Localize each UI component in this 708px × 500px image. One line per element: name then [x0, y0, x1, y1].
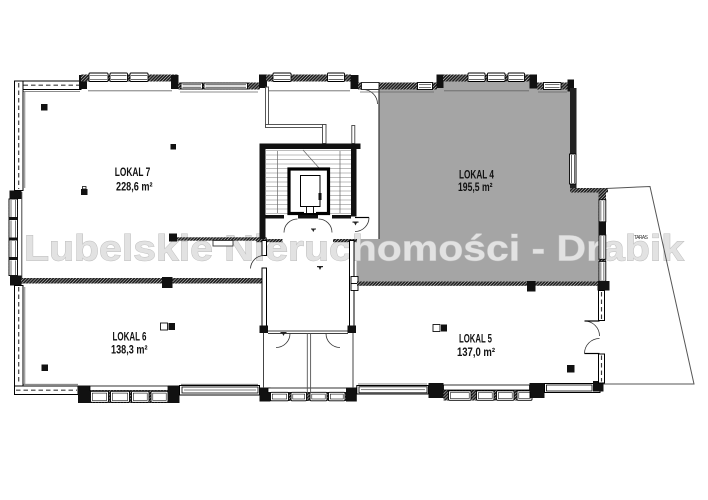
- svg-text:LOKAL 5: LOKAL 5: [459, 332, 492, 346]
- svg-text:Lubelskie Nieruchomości - Drab: Lubelskie Nieruchomości - Drabik: [24, 228, 685, 269]
- svg-text:195,5 m²: 195,5 m²: [458, 180, 493, 194]
- svg-text:TARAS: TARAS: [634, 235, 649, 241]
- svg-text:LOKAL 6: LOKAL 6: [113, 330, 147, 344]
- svg-text:228,6 m²: 228,6 m²: [116, 180, 153, 194]
- svg-text:138,3 m²: 138,3 m²: [111, 343, 148, 357]
- svg-text:LOKAL 7: LOKAL 7: [115, 165, 151, 179]
- svg-text:137,0 m²: 137,0 m²: [457, 345, 495, 359]
